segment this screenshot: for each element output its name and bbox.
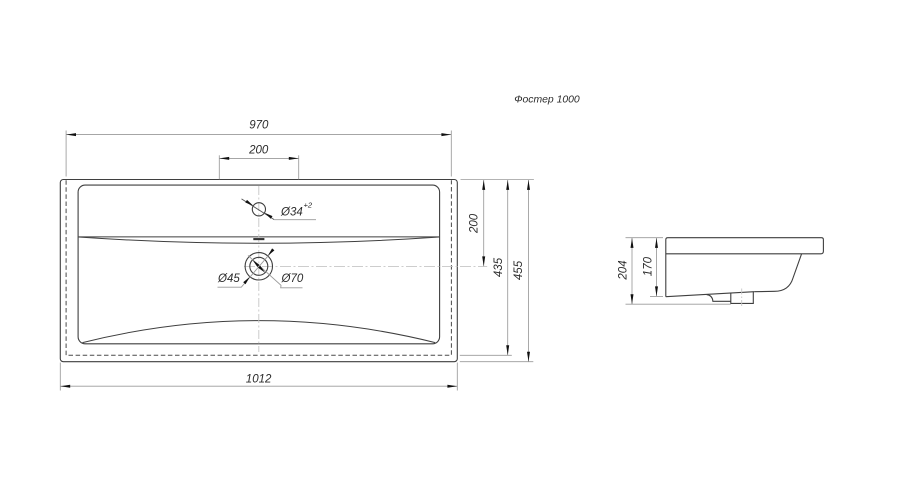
svg-text:Фостер 1000: Фостер 1000 [514,94,580,105]
svg-text:455: 455 [513,260,525,280]
svg-text:170: 170 [643,256,655,276]
svg-text:Ø34: Ø34 [280,207,303,219]
svg-text:204: 204 [618,260,630,280]
svg-text:435: 435 [493,257,505,277]
svg-text:Ø45: Ø45 [217,273,240,285]
svg-text:Ø70: Ø70 [281,273,304,285]
svg-text:200: 200 [248,145,269,157]
svg-text:+2: +2 [304,201,313,210]
svg-text:200: 200 [469,213,481,234]
svg-text:1012: 1012 [246,374,272,386]
svg-text:970: 970 [249,120,269,132]
